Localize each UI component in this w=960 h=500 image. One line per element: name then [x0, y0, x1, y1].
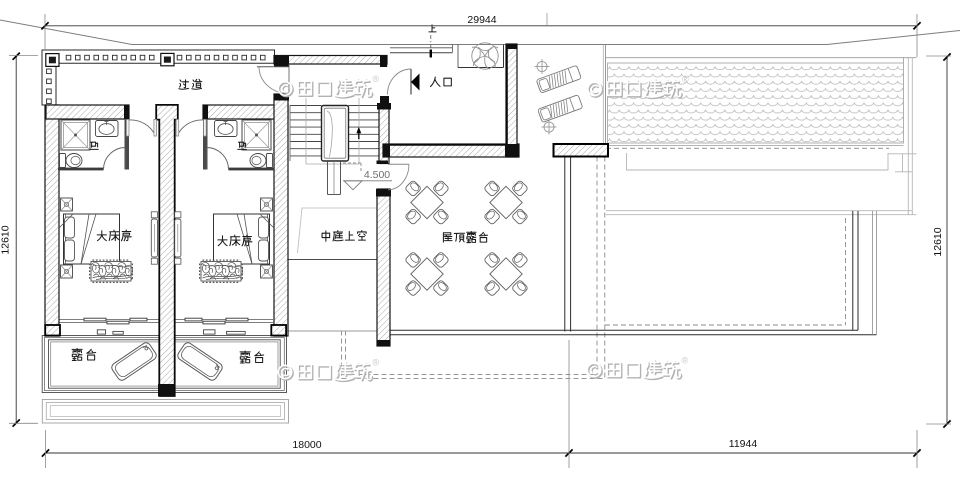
- svg-text:12610: 12610: [932, 227, 944, 256]
- svg-text:4.500: 4.500: [364, 169, 390, 181]
- svg-text:12610: 12610: [0, 225, 12, 254]
- svg-text:29944: 29944: [467, 14, 496, 26]
- svg-text:®: ®: [373, 358, 380, 368]
- svg-text:11944: 11944: [729, 438, 758, 450]
- svg-text:®: ®: [373, 74, 380, 84]
- svg-text:18000: 18000: [292, 439, 321, 451]
- svg-text:®: ®: [682, 75, 689, 85]
- svg-text:®: ®: [682, 356, 689, 366]
